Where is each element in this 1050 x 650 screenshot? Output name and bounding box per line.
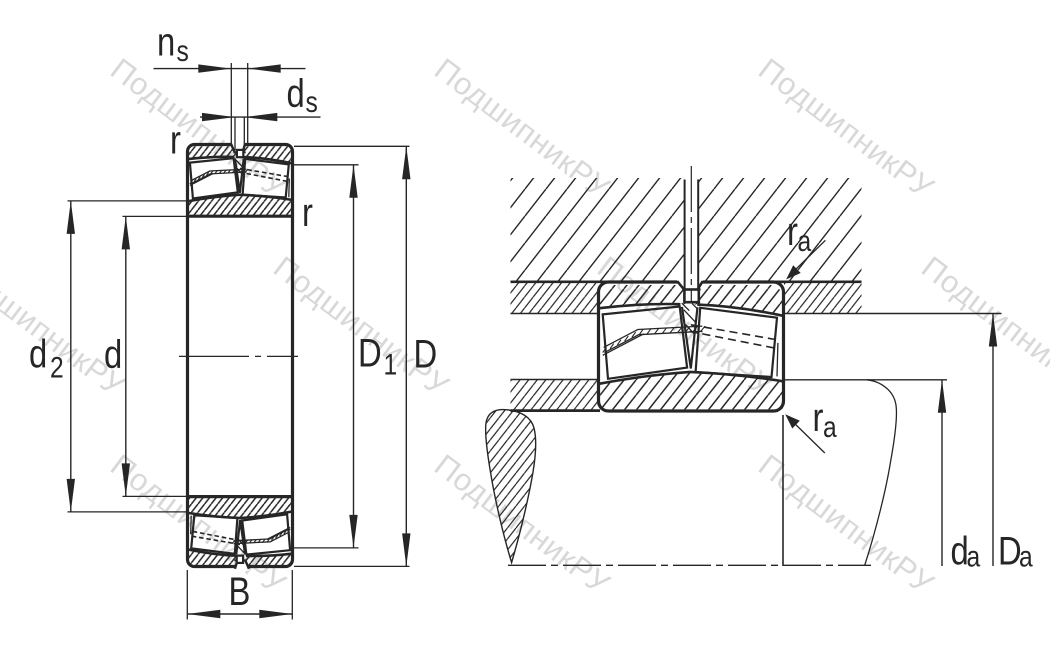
svg-text:a: a	[967, 539, 981, 573]
svg-text:a: a	[1019, 539, 1033, 573]
svg-text:s: s	[177, 34, 189, 68]
svg-text:d: d	[104, 332, 122, 377]
svg-text:D: D	[414, 331, 438, 376]
svg-text:r: r	[813, 395, 824, 440]
svg-text:1: 1	[384, 347, 398, 381]
svg-text:d: d	[287, 71, 305, 116]
svg-text:B: B	[229, 569, 251, 614]
svg-text:2: 2	[50, 350, 64, 384]
svg-text:r: r	[787, 209, 798, 254]
svg-text:a: a	[798, 224, 812, 258]
svg-text:D: D	[358, 330, 382, 375]
svg-text:r: r	[302, 190, 313, 235]
svg-text:n: n	[157, 19, 175, 64]
svg-text:r: r	[170, 117, 181, 162]
svg-text:d: d	[29, 331, 47, 376]
svg-text:D: D	[998, 528, 1022, 573]
svg-text:a: a	[823, 410, 837, 444]
svg-text:s: s	[306, 85, 318, 119]
